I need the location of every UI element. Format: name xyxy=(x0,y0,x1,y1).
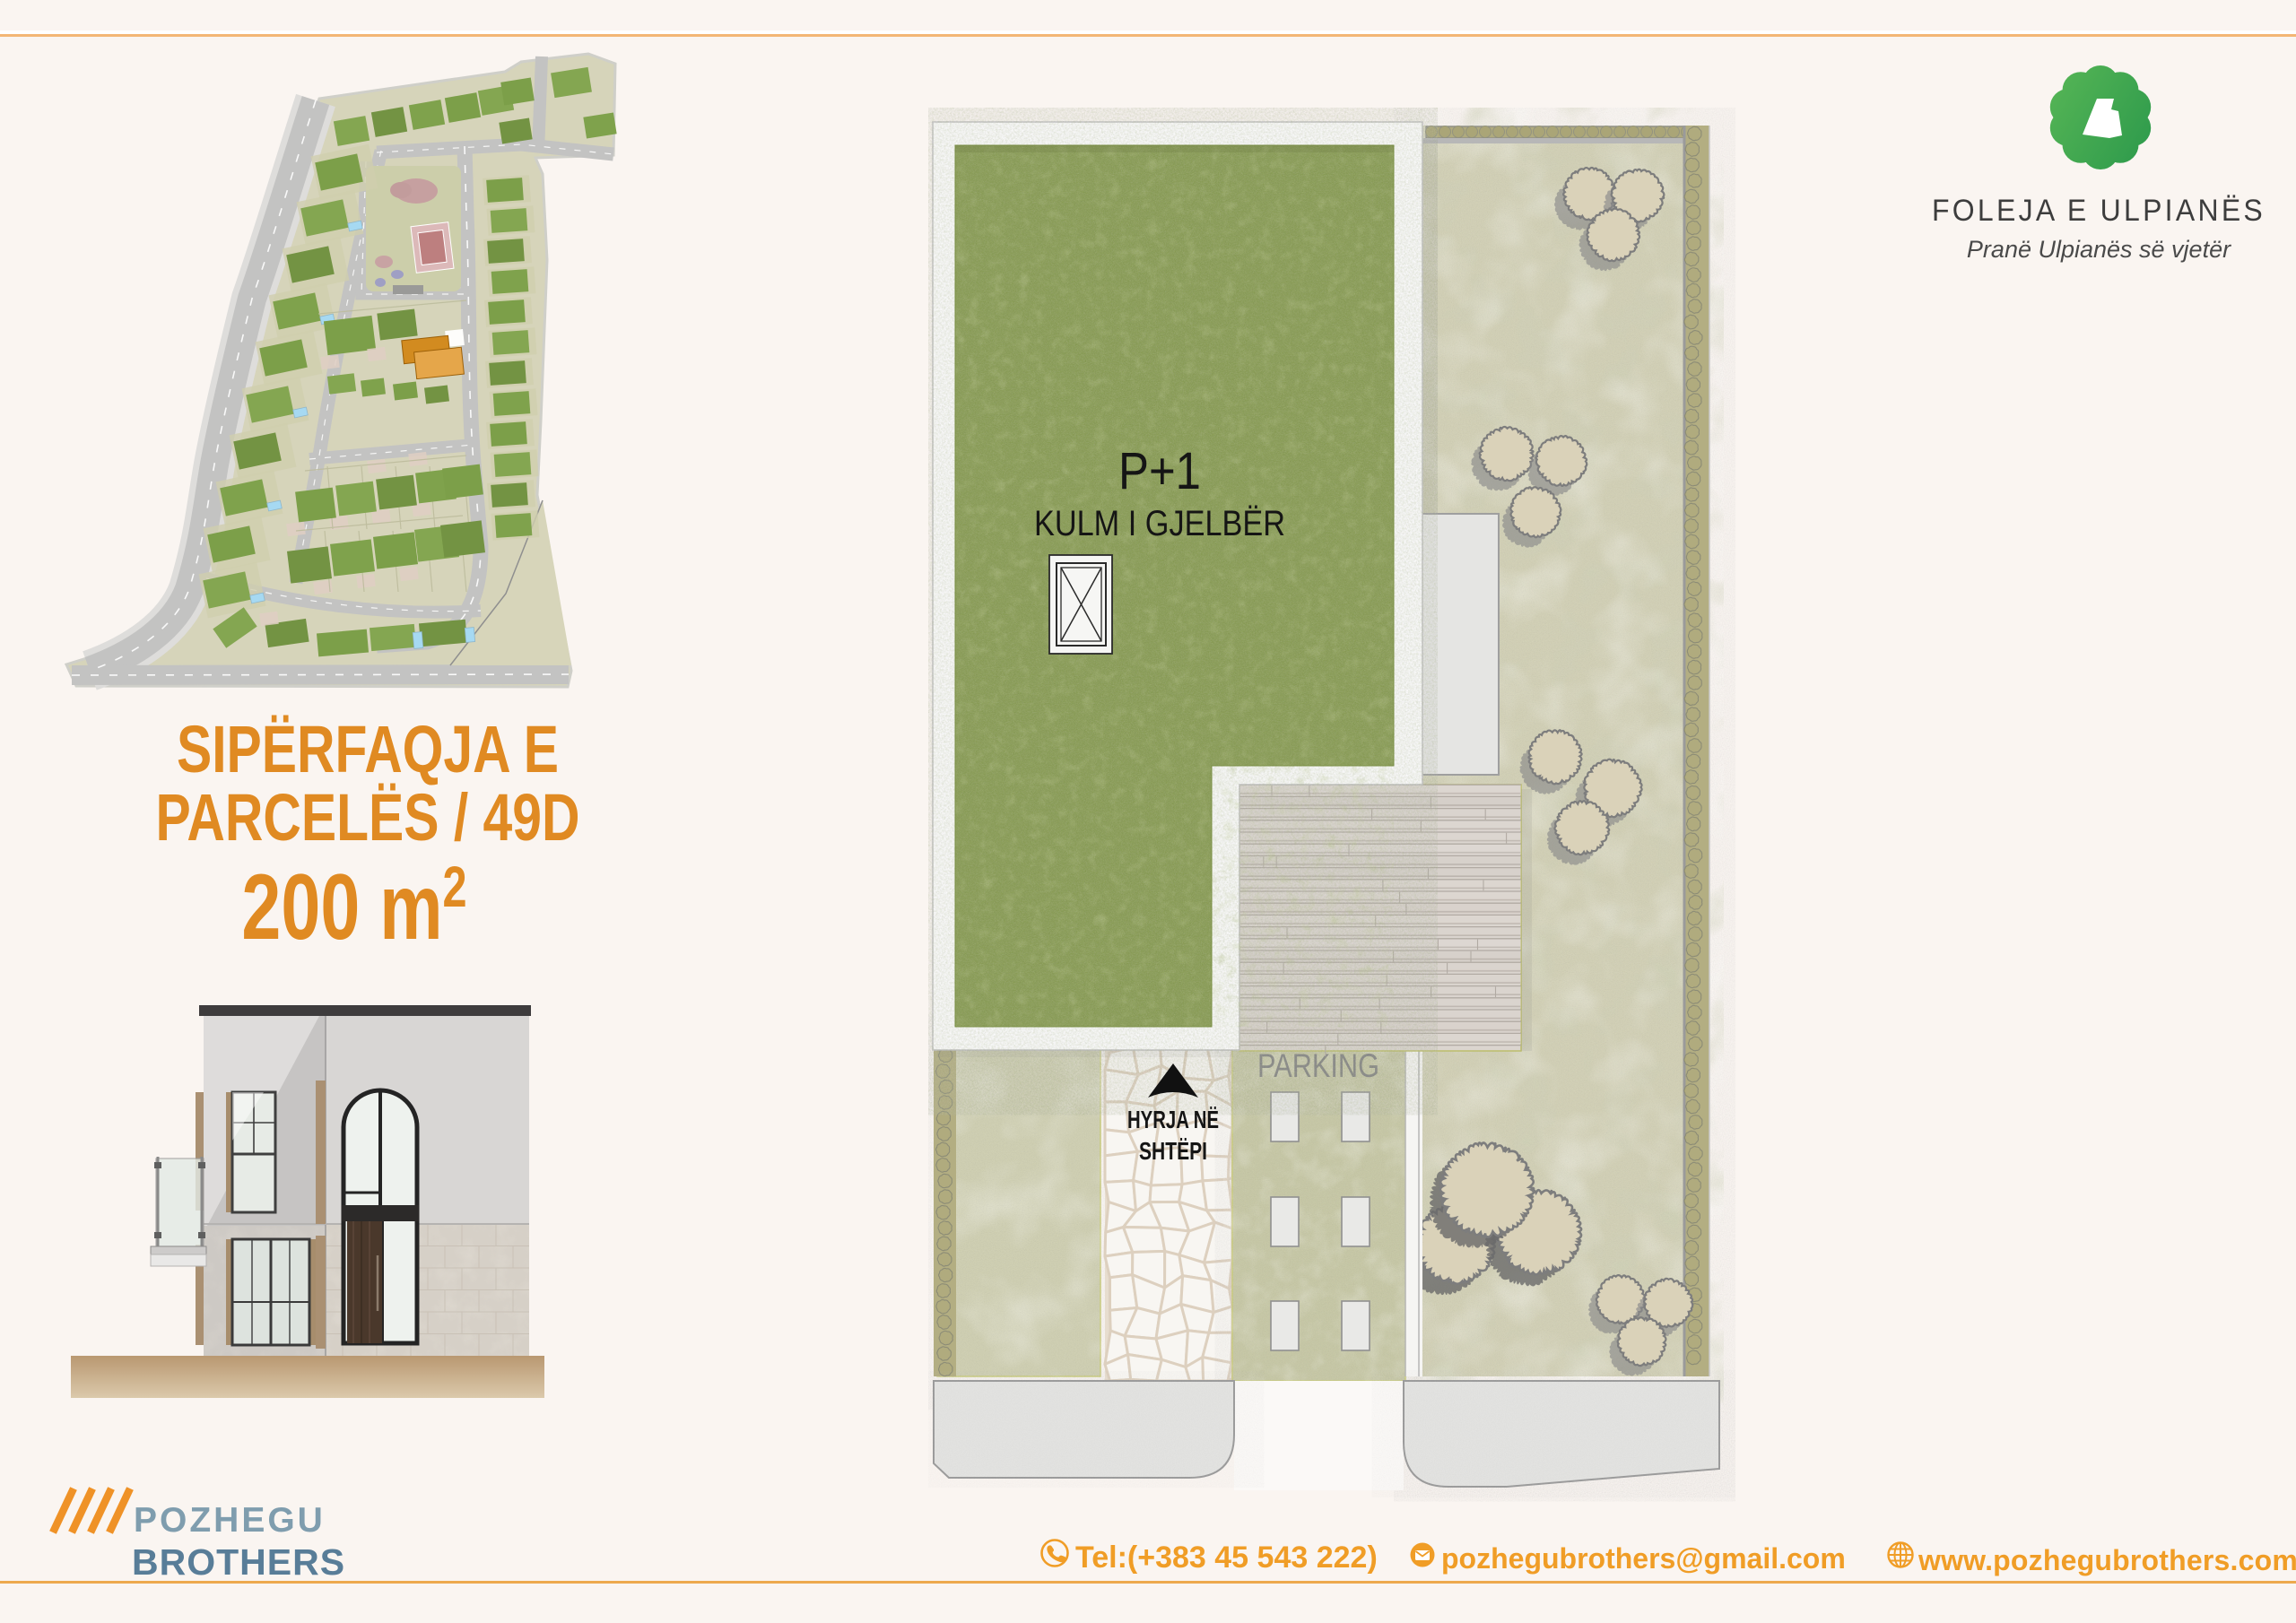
svg-text:P+1: P+1 xyxy=(1118,442,1201,500)
svg-text:SHTËPI: SHTËPI xyxy=(1139,1137,1207,1165)
svg-text:BROTHERS: BROTHERS xyxy=(132,1541,345,1583)
svg-text:POZHEGU: POZHEGU xyxy=(134,1501,326,1540)
svg-text:PARKING: PARKING xyxy=(1257,1047,1379,1084)
svg-text:KULM I GJELBËR: KULM I GJELBËR xyxy=(1034,504,1285,543)
svg-text:HYRJA NË: HYRJA NË xyxy=(1127,1106,1219,1133)
